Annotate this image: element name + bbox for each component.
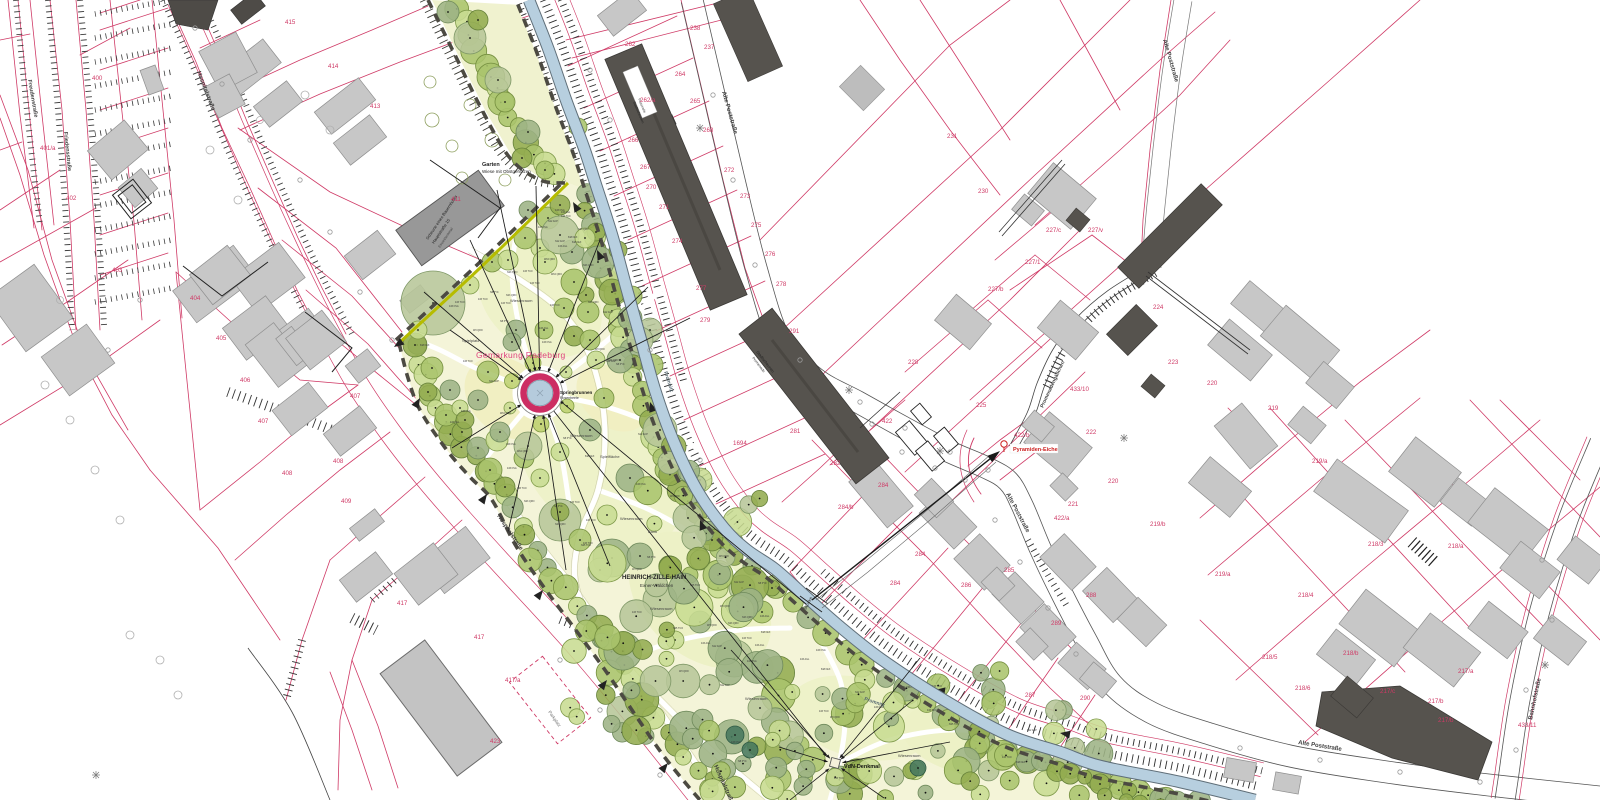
svg-text:225: 225 (976, 402, 987, 409)
svg-text:404: 404 (190, 295, 201, 302)
svg-text:N12 ACP: N12 ACP (855, 691, 865, 694)
svg-text:N12 ACP: N12 ACP (555, 240, 565, 243)
svg-text:433 AGL: 433 AGL (760, 615, 770, 618)
svg-text:433 TCO: 433 TCO (742, 637, 752, 640)
svg-text:N12 ACP: N12 ACP (734, 581, 744, 584)
svg-text:275: 275 (751, 222, 762, 229)
svg-text:N8 PYC: N8 PYC (616, 363, 625, 366)
svg-text:W3 QRO: W3 QRO (679, 670, 689, 673)
svg-text:273: 273 (740, 193, 751, 200)
svg-text:W3 QRO: W3 QRO (720, 605, 730, 608)
svg-text:N12 ACP: N12 ACP (548, 220, 558, 223)
svg-text:220: 220 (1207, 380, 1218, 387)
svg-text:818 FEX: 818 FEX (568, 236, 578, 239)
svg-text:217/b: 217/b (1438, 717, 1454, 724)
svg-text:291: 291 (789, 328, 800, 335)
svg-text:W3 QRO: W3 QRO (473, 329, 483, 332)
svg-text:N23 QRO: N23 QRO (507, 271, 518, 274)
svg-text:433 TCO: 433 TCO (550, 304, 560, 307)
svg-text:HEINRICH-ZILLE-HAIN: HEINRICH-ZILLE-HAIN (622, 575, 686, 581)
svg-text:433 TCO: 433 TCO (632, 611, 642, 614)
svg-text:433 FSG: 433 FSG (506, 443, 516, 446)
svg-text:417: 417 (474, 634, 485, 641)
svg-text:N23 QRO: N23 QRO (524, 500, 535, 503)
svg-text:422: 422 (882, 418, 893, 425)
svg-text:818 FEX: 818 FEX (1016, 761, 1026, 764)
svg-text:433 TCO: 433 TCO (819, 710, 829, 713)
svg-text:N25 TCO: N25 TCO (581, 544, 591, 547)
svg-text:433 FSG: 433 FSG (636, 483, 646, 486)
svg-text:224: 224 (1153, 304, 1164, 311)
svg-text:277: 277 (696, 285, 707, 292)
svg-text:W10 QRO: W10 QRO (551, 273, 562, 276)
svg-text:403: 403 (112, 267, 123, 274)
svg-text:433 AGL: 433 AGL (450, 421, 460, 424)
svg-text:415: 415 (285, 19, 296, 26)
svg-text:284: 284 (890, 580, 901, 587)
svg-text:272: 272 (724, 167, 735, 174)
svg-text:218/5: 218/5 (1262, 654, 1278, 661)
svg-text:1694: 1694 (733, 440, 747, 447)
svg-text:Wiesenraum: Wiesenraum (650, 606, 673, 611)
svg-text:221: 221 (1068, 501, 1079, 508)
svg-text:N12 ACP: N12 ACP (712, 645, 722, 648)
svg-text:433 AGL: 433 AGL (561, 211, 571, 214)
svg-text:N23 QRO: N23 QRO (608, 359, 619, 362)
svg-text:265: 265 (690, 98, 701, 105)
svg-text:N8 PYC: N8 PYC (738, 760, 747, 763)
svg-text:268: 268 (703, 127, 714, 134)
svg-text:290: 290 (1080, 695, 1091, 702)
svg-text:223: 223 (1168, 359, 1179, 366)
svg-text:433 FSG: 433 FSG (449, 305, 459, 308)
svg-text:Wiesenraum: Wiesenraum (620, 516, 643, 521)
svg-text:227/v: 227/v (1088, 227, 1104, 234)
svg-text:284/b: 284/b (838, 504, 854, 511)
svg-text:818 FEX: 818 FEX (572, 241, 582, 244)
svg-text:N12 ACP: N12 ACP (603, 311, 613, 314)
svg-text:433 FSG: 433 FSG (542, 341, 552, 344)
svg-text:279: 279 (700, 317, 711, 324)
svg-text:433 TCO: 433 TCO (478, 298, 488, 301)
svg-text:Pyramiden-Eiche: Pyramiden-Eiche (1013, 447, 1058, 453)
svg-text:284: 284 (878, 482, 889, 489)
svg-text:N25 TCO: N25 TCO (673, 627, 683, 630)
svg-text:Gemarkung Radeburg: Gemarkung Radeburg (476, 350, 566, 360)
svg-text:433 AGL: 433 AGL (701, 642, 711, 645)
svg-text:W3 QRO: W3 QRO (632, 568, 642, 571)
svg-text:Wiesenraum: Wiesenraum (898, 753, 921, 758)
svg-text:219/a: 219/a (1312, 458, 1328, 465)
svg-text:433 FSG: 433 FSG (507, 467, 517, 470)
svg-text:267: 267 (640, 164, 651, 171)
svg-text:286: 286 (961, 582, 972, 589)
svg-text:287: 287 (1025, 692, 1036, 699)
svg-text:423: 423 (490, 738, 501, 745)
svg-text:433 TCO: 433 TCO (523, 270, 533, 273)
svg-text:433 FSG: 433 FSG (731, 741, 741, 744)
svg-text:285: 285 (1004, 567, 1015, 574)
svg-text:217/a: 217/a (1458, 668, 1474, 675)
svg-text:227/c: 227/c (1046, 227, 1061, 234)
svg-text:N23 QRO: N23 QRO (728, 622, 739, 625)
svg-text:Wiesenraum: Wiesenraum (510, 298, 533, 303)
svg-text:408: 408 (333, 458, 344, 465)
svg-text:433 TCO: 433 TCO (1002, 756, 1012, 759)
svg-text:228: 228 (908, 359, 919, 366)
svg-text:N12 ACP: N12 ACP (1027, 729, 1037, 732)
svg-text:414: 414 (328, 63, 339, 70)
svg-text:401/a: 401/a (40, 145, 56, 152)
svg-text:270: 270 (646, 184, 657, 191)
svg-text:433 TCO: 433 TCO (455, 301, 465, 304)
svg-text:N12 ACP: N12 ACP (720, 684, 730, 687)
svg-text:413: 413 (370, 103, 381, 110)
svg-text:Garten: Garten (482, 162, 500, 168)
svg-text:433 TCO: 433 TCO (561, 215, 571, 218)
svg-text:Wiesenraum: Wiesenraum (570, 433, 593, 438)
svg-text:282: 282 (830, 460, 841, 467)
svg-text:W10 QRO: W10 QRO (544, 258, 555, 261)
svg-text:W3 QRO: W3 QRO (707, 624, 717, 627)
svg-text:408: 408 (282, 470, 293, 477)
svg-text:433 TCO: 433 TCO (834, 777, 844, 780)
svg-text:818 FEX: 818 FEX (420, 344, 430, 347)
svg-text:433 AGL: 433 AGL (755, 644, 765, 647)
svg-text:217/c: 217/c (1380, 688, 1395, 695)
svg-text:N23 QRO: N23 QRO (578, 228, 589, 231)
svg-text:284: 284 (915, 551, 926, 558)
svg-text:237: 237 (704, 44, 715, 51)
svg-text:262/a: 262/a (640, 97, 656, 104)
svg-text:417: 417 (397, 600, 408, 607)
svg-text:400: 400 (92, 75, 103, 82)
svg-text:271: 271 (659, 204, 670, 211)
svg-text:W3 QRO: W3 QRO (719, 555, 729, 558)
svg-text:N25 TCO: N25 TCO (949, 723, 959, 726)
svg-text:231: 231 (947, 133, 958, 140)
svg-text:219: 219 (1268, 405, 1279, 412)
svg-text:262: 262 (625, 41, 636, 48)
svg-text:289: 289 (1051, 620, 1062, 627)
svg-text:W3 QRO: W3 QRO (595, 348, 605, 351)
svg-text:433 TCO: 433 TCO (570, 501, 580, 504)
svg-text:Bank: Bank (648, 529, 657, 534)
svg-text:230: 230 (978, 188, 989, 195)
svg-text:409: 409 (341, 498, 352, 505)
svg-text:218/6: 218/6 (1295, 685, 1311, 692)
svg-text:N8 PYC: N8 PYC (554, 505, 563, 508)
svg-text:Springbrunnen: Springbrunnen (560, 390, 592, 395)
svg-text:433 TCO: 433 TCO (927, 709, 937, 712)
svg-text:264: 264 (675, 71, 686, 78)
svg-text:411: 411 (451, 196, 461, 203)
svg-text:N23 QRO: N23 QRO (588, 301, 599, 304)
svg-text:407: 407 (350, 393, 361, 400)
svg-text:220: 220 (1108, 478, 1119, 485)
svg-text:N23 QRO: N23 QRO (583, 264, 594, 267)
svg-text:Wiesenraum: Wiesenraum (745, 696, 768, 701)
svg-text:433 FSG: 433 FSG (816, 649, 826, 652)
svg-text:N12 ACP: N12 ACP (638, 433, 648, 436)
svg-text:218/a: 218/a (1448, 543, 1464, 550)
svg-text:Wiese mit Obstgehölzen: Wiese mit Obstgehölzen (482, 169, 531, 174)
svg-text:278: 278 (776, 281, 787, 288)
svg-text:417/a: 417/a (505, 677, 521, 684)
svg-text:227/1: 227/1 (1025, 259, 1041, 266)
svg-text:433 FSG: 433 FSG (461, 410, 471, 413)
svg-text:281: 281 (790, 428, 801, 435)
svg-text:227/b: 227/b (988, 286, 1004, 293)
svg-text:818 FEX: 818 FEX (821, 668, 831, 671)
svg-text:406: 406 (240, 377, 251, 384)
svg-text:433/11: 433/11 (1518, 722, 1537, 729)
svg-text:N8 PYC: N8 PYC (758, 582, 767, 585)
svg-text:Spielplatz: Spielplatz (462, 338, 479, 343)
svg-text:219/a: 219/a (1215, 571, 1231, 578)
svg-text:217/b: 217/b (1428, 698, 1444, 705)
svg-text:274: 274 (672, 238, 683, 245)
svg-text:N12 ACP: N12 ACP (489, 380, 499, 383)
svg-text:222: 222 (1086, 429, 1097, 436)
svg-text:433/10: 433/10 (1070, 386, 1089, 393)
svg-text:266: 266 (628, 137, 639, 144)
svg-text:W3 QRO: W3 QRO (830, 716, 840, 719)
svg-text:N23 QRO: N23 QRO (555, 523, 566, 526)
svg-text:422/a: 422/a (1054, 515, 1070, 522)
svg-text:218/4: 218/4 (1298, 592, 1314, 599)
svg-text:N23 QRO: N23 QRO (506, 294, 517, 297)
svg-text:433 AGL: 433 AGL (558, 245, 568, 248)
svg-text:818 FEX: 818 FEX (761, 631, 771, 634)
svg-text:433 TCO: 433 TCO (463, 360, 473, 363)
svg-text:218/3: 218/3 (1368, 541, 1384, 548)
svg-text:N8 PYC: N8 PYC (647, 556, 656, 559)
svg-text:219/b: 219/b (1150, 521, 1166, 528)
svg-text:402: 402 (66, 195, 77, 202)
svg-text:Spielfläche: Spielfläche (600, 454, 620, 459)
svg-text:407: 407 (258, 418, 269, 425)
svg-text:Exner-Wäldchen: Exner-Wäldchen (640, 583, 674, 588)
svg-text:288: 288 (1086, 592, 1097, 599)
svg-text:422/b: 422/b (1014, 432, 1030, 439)
svg-text:VdN-Denkmal: VdN-Denkmal (844, 764, 880, 770)
svg-text:433 AGL: 433 AGL (800, 658, 810, 661)
svg-text:238: 238 (690, 25, 701, 32)
svg-text:218/b: 218/b (1343, 650, 1359, 657)
svg-text:N23 QRO: N23 QRO (742, 616, 753, 619)
svg-text:405: 405 (216, 335, 227, 342)
svg-text:276: 276 (765, 251, 776, 258)
svg-text:433 AGL: 433 AGL (539, 327, 549, 330)
svg-text:433 FSG: 433 FSG (538, 226, 548, 229)
svg-text:Rosenbeete: Rosenbeete (560, 396, 579, 400)
